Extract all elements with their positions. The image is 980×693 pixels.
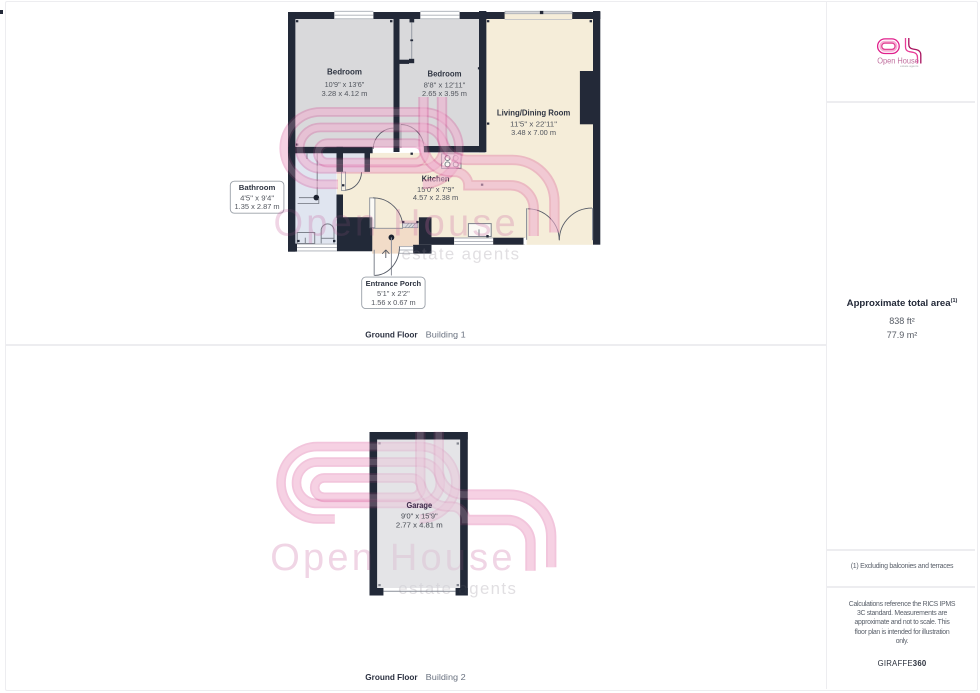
svg-text:2.65 x 3.95 m: 2.65 x 3.95 m: [422, 89, 467, 98]
svg-text:4'5" x 9'4": 4'5" x 9'4": [240, 193, 274, 202]
svg-text:Ground Floor: Ground Floor: [365, 673, 418, 682]
svg-text:Bedroom: Bedroom: [327, 67, 362, 77]
svg-text:Living/Dining Room: Living/Dining Room: [497, 108, 571, 118]
svg-text:Bedroom: Bedroom: [428, 69, 462, 79]
svg-text:Entrance Porch: Entrance Porch: [366, 279, 422, 288]
svg-text:10'9" x 13'6": 10'9" x 13'6": [325, 80, 365, 89]
svg-text:8'8" x 12'11": 8'8" x 12'11": [424, 80, 466, 89]
svg-text:Ground Floor: Ground Floor: [365, 331, 418, 340]
svg-text:9'0" x 15'9": 9'0" x 15'9": [401, 511, 438, 520]
svg-text:5'1" x 2'2": 5'1" x 2'2": [377, 289, 410, 298]
svg-text:2.77 x 4.81 m: 2.77 x 4.81 m: [396, 521, 443, 530]
svg-text:Building 1: Building 1: [426, 331, 466, 340]
svg-text:Bathroom: Bathroom: [239, 183, 276, 192]
svg-text:Open House: Open House: [274, 202, 519, 244]
svg-text:3.48 x 7.00 m: 3.48 x 7.00 m: [511, 128, 556, 137]
svg-text:4.57 x 2.38 m: 4.57 x 2.38 m: [413, 193, 458, 202]
svg-text:estate agents: estate agents: [402, 245, 521, 264]
svg-text:1.56 x 0.67 m: 1.56 x 0.67 m: [371, 298, 416, 307]
svg-text:estate agents: estate agents: [900, 64, 919, 68]
svg-text:3.28 x 4.12 m: 3.28 x 4.12 m: [322, 89, 368, 98]
svg-text:Building 2: Building 2: [426, 673, 466, 682]
svg-text:Garage: Garage: [407, 500, 433, 510]
